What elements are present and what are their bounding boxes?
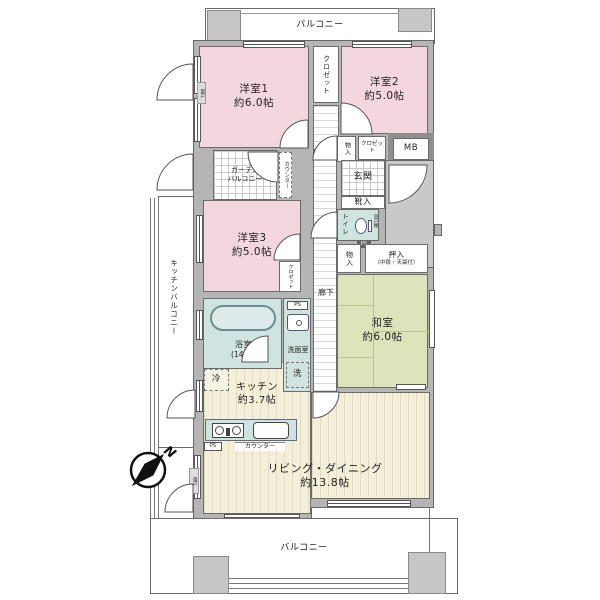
right-railing-connector <box>429 507 430 553</box>
ps-kitchen: PS <box>204 442 222 451</box>
room-western2: 洋室2 約5.0帖 <box>341 46 428 134</box>
closet-top-label: クロゼット <box>323 55 330 95</box>
kitchen-balcony-label: キッチンバルコニー <box>170 259 178 336</box>
room-western3-name: 洋室3 <box>237 232 266 246</box>
closet-western3: クロゼット <box>279 261 301 292</box>
stove-burner-left-icon <box>215 426 224 435</box>
storage-oshiire: 押入 （中段・天袋付） <box>365 244 428 273</box>
bathtub-icon <box>210 305 276 331</box>
window-arc-west-b <box>157 154 193 190</box>
room-western2-name: 洋室2 <box>370 76 399 90</box>
tatami-line-h3 <box>373 331 429 332</box>
room-western2-size: 約5.0帖 <box>364 90 404 104</box>
toilet-label: トイレ <box>341 213 348 236</box>
shutter-lower-label: 雨戸 <box>192 477 197 486</box>
meter-box-label: MB <box>404 143 418 154</box>
bottom-railing-line1 <box>228 578 408 579</box>
room-western1: 洋室1 約6.0帖 <box>199 46 309 148</box>
shoe-box-label: 靴入 <box>355 197 372 207</box>
floor-plan: バルコニー キッチンバルコニー 洋室1 約6.0帖 クロゼット 洋室2 約5.0… <box>0 0 600 600</box>
pillar-top-right <box>398 8 432 32</box>
left-railing-line3 <box>158 198 159 556</box>
washroom-label: 洗面室 <box>284 345 312 357</box>
bathroom-label-group: 浴室 (1418) <box>204 335 283 365</box>
pillar-bottom-right <box>408 552 446 594</box>
bathroom-name: 浴室 <box>235 340 252 350</box>
bathroom-size: (1418) <box>231 350 256 360</box>
monoire-entry-label: 物入 <box>344 142 350 156</box>
entrance-label: 玄関 <box>353 172 372 184</box>
toilet-room: トイレ 吊戸棚 <box>337 209 379 241</box>
entrance-hall: 玄関 <box>341 160 385 196</box>
stove-grill-icon <box>226 428 230 436</box>
sink-basin-icon <box>296 320 302 326</box>
window-western3-left <box>196 215 203 263</box>
sink-icon <box>287 314 309 331</box>
wall-tab-right <box>434 224 442 236</box>
room-western1-size: 約6.0帖 <box>234 97 274 111</box>
closet-top: クロゼット <box>313 46 339 103</box>
left-railing-line2 <box>154 198 155 556</box>
kitchen-label-group: キッチン 約3.7帖 <box>207 380 307 408</box>
living-dining-name: リビング・ダイニング <box>268 462 383 476</box>
window-living-bottom-right <box>327 500 411 507</box>
stove-icon <box>212 423 244 438</box>
kitchen-size: 約3.7帖 <box>238 394 276 407</box>
tatami-line-h1 <box>338 305 373 306</box>
shutter-tag-upper: 雨戸 <box>197 82 206 104</box>
kitchen-balcony: キッチンバルコニー <box>158 196 194 448</box>
compass-circle <box>131 453 165 487</box>
washer-label: 洗 <box>293 369 302 380</box>
oshiire-label: 押入 <box>389 250 405 260</box>
tatami-line-h2 <box>338 357 373 358</box>
room-western3-size: 約5.0帖 <box>232 246 272 260</box>
storage-monoire-hall: 物入 <box>337 244 361 273</box>
window-japanese-bottom <box>396 384 426 390</box>
left-railing-line1 <box>150 198 151 556</box>
window-arc-west-a <box>157 64 193 100</box>
counter-kitchen-label: カウンター <box>235 442 285 451</box>
shutter-upper-label: 雨戸 <box>199 89 204 98</box>
toilet-tank-icon <box>368 220 372 232</box>
shoe-box: 靴入 <box>341 196 385 209</box>
window-western1-left-b <box>194 98 201 142</box>
bathroom: 浴室 (1418) <box>203 298 282 369</box>
oshiire-note: （中段・天袋付） <box>374 260 418 267</box>
room-japanese-name: 和室 <box>372 317 394 331</box>
corridor: 廊下 <box>313 150 337 392</box>
washroom: PS 洗面室 洗 <box>283 298 311 392</box>
hall-upper-floor <box>313 105 339 150</box>
counter-hall-label: カウンター <box>283 161 289 189</box>
kitchen-counter <box>205 419 297 441</box>
toilet-bowl-icon <box>355 218 367 234</box>
ps-washroom: PS <box>287 301 308 310</box>
counter-hall: カウンター <box>279 152 292 198</box>
pillar-bottom-left <box>193 556 229 594</box>
storage-monoire-entry: 物入 <box>337 136 356 162</box>
storage-closet-entry: クロゼット <box>358 136 386 160</box>
living-dining-size: 約13.8帖 <box>300 476 350 490</box>
window-kitchen-left <box>196 380 203 412</box>
garden-balcony-label2: バルコニー <box>228 175 263 184</box>
bottom-railing-line3 <box>228 588 408 589</box>
kitchen-name: キッチン <box>236 381 278 394</box>
closet-entry-label: クロゼット <box>359 141 385 155</box>
window-japanese-right <box>429 290 435 348</box>
window-western2-top <box>352 41 412 48</box>
room-japanese-size: 約6.0帖 <box>362 331 402 345</box>
stove-burner-right-icon <box>232 426 241 435</box>
monoire-hall-label: 物入 <box>346 251 353 267</box>
corridor-label: 廊下 <box>314 287 338 299</box>
shutter-tag-lower: 雨戸 <box>189 468 199 494</box>
window-bath-left <box>196 310 203 340</box>
meter-box: MB <box>393 138 429 160</box>
room-western1-name: 洋室1 <box>239 83 268 97</box>
living-dining-label-group: リビング・ダイニング 約13.8帖 <box>235 458 415 494</box>
room-japanese: 和室 約6.0帖 <box>337 274 428 388</box>
window-western1-top <box>243 41 305 48</box>
closet-western3-label: クロゼット <box>288 264 293 289</box>
kitchen-sink-icon <box>253 422 289 439</box>
toilet-hanging-shelf-label: 吊戸棚 <box>373 214 378 228</box>
garden-balcony-label1: ガーデン <box>231 166 259 175</box>
garden-balcony: ガーデン バルコニー <box>213 150 277 200</box>
pillar-top-left <box>207 10 241 44</box>
bottom-railing-line2 <box>228 583 408 584</box>
